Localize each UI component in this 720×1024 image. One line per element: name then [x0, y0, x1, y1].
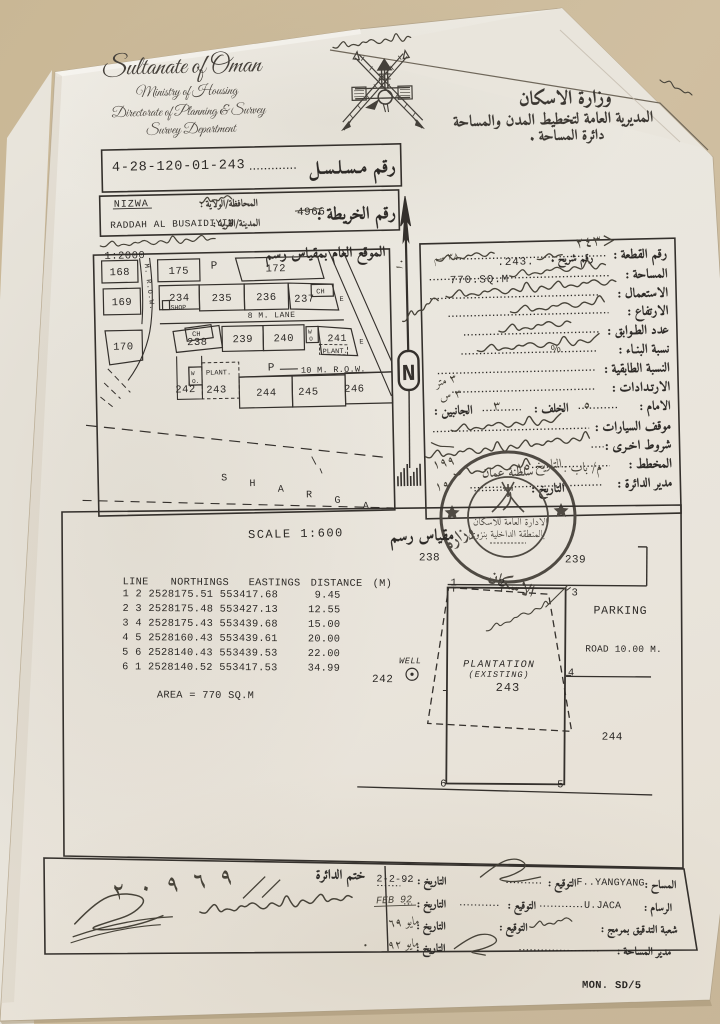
- svg-text:4-28-120-01-243: 4-28-120-01-243: [112, 158, 246, 176]
- svg-text:ROAD 10.00 M.: ROAD 10.00 M.: [585, 643, 662, 655]
- svg-text:.243.: .243.: [497, 256, 534, 269]
- svg-text:EASTINGS: EASTINGS: [249, 577, 301, 589]
- svg-text:240: 240: [273, 333, 294, 345]
- svg-text:5: 5: [557, 779, 563, 791]
- svg-text:2 3 2528175.48 553427.13: 2 3 2528175.48 553427.13: [122, 603, 278, 616]
- svg-text:LINE: LINE: [123, 576, 149, 588]
- svg-text:CH: CH: [316, 288, 325, 296]
- svg-text:(M): (M): [373, 578, 393, 590]
- svg-text:3: 3: [571, 587, 577, 599]
- svg-text:E: E: [339, 296, 343, 304]
- svg-text:244: 244: [602, 732, 623, 744]
- svg-text:E: E: [359, 338, 363, 346]
- svg-text:236: 236: [256, 292, 277, 304]
- svg-text:%: %: [550, 343, 561, 356]
- svg-text:243: 243: [496, 681, 521, 695]
- svg-text:W: W: [308, 329, 312, 336]
- svg-text:PLANT.: PLANT.: [322, 348, 347, 357]
- svg-text:SCALE 1:600: SCALE 1:600: [248, 526, 344, 542]
- svg-text:245: 245: [298, 386, 319, 398]
- svg-text:AREA = 770 SQ.M: AREA = 770 SQ.M: [157, 689, 254, 702]
- svg-text:1 2 2528175.51 553417.68: 1 2 2528175.51 553417.68: [123, 588, 279, 601]
- svg-text:3 4 2528175.43 553439.68: 3 4 2528175.43 553439.68: [122, 617, 278, 630]
- svg-text:235: 235: [212, 293, 233, 305]
- svg-text:N: N: [402, 361, 416, 387]
- svg-text:A: A: [278, 485, 284, 496]
- svg-text:WELL: WELL: [399, 656, 421, 666]
- svg-text:O: O: [309, 336, 313, 343]
- svg-text:2-2-92: 2-2-92: [376, 874, 413, 886]
- svg-text:770.SQ.M: 770.SQ.M: [450, 274, 509, 287]
- svg-text:P: P: [268, 362, 275, 374]
- svg-text:239: 239: [232, 334, 253, 346]
- svg-text:W: W: [191, 370, 195, 377]
- svg-text:2: 2: [498, 578, 504, 590]
- svg-text:U.JACA: U.JACA: [584, 901, 621, 913]
- svg-text:242: 242: [175, 384, 196, 396]
- svg-text:169: 169: [112, 297, 133, 309]
- svg-text:F..YANGYANG: F..YANGYANG: [576, 878, 644, 890]
- svg-text:241: 241: [327, 334, 347, 345]
- svg-text:34.99: 34.99: [308, 663, 340, 675]
- svg-text:6 1 2528140.52 553417.53: 6 1 2528140.52 553417.53: [122, 661, 278, 674]
- svg-text:243: 243: [206, 384, 227, 396]
- svg-text:238: 238: [419, 552, 440, 564]
- svg-text:242: 242: [372, 674, 393, 686]
- svg-text:1: 1: [450, 578, 456, 590]
- svg-text:234: 234: [169, 293, 190, 305]
- svg-text:12.55: 12.55: [308, 604, 340, 616]
- svg-text:15.00: 15.00: [308, 619, 340, 631]
- svg-text:4: 4: [568, 667, 574, 679]
- svg-text:175: 175: [168, 266, 189, 278]
- svg-text:244: 244: [256, 387, 277, 399]
- svg-text:8 M. LANE: 8 M. LANE: [248, 311, 296, 321]
- svg-text:S: S: [221, 473, 227, 484]
- svg-text:9.45: 9.45: [315, 590, 341, 602]
- svg-text:20.00: 20.00: [308, 633, 340, 645]
- svg-text:H: H: [249, 479, 255, 490]
- svg-text:172: 172: [265, 263, 286, 275]
- svg-text:22.00: 22.00: [308, 648, 340, 660]
- svg-text:NORTHINGS: NORTHINGS: [171, 577, 229, 589]
- svg-text:P: P: [211, 261, 218, 273]
- svg-text:G: G: [334, 496, 340, 507]
- svg-text:MON. SD/5: MON. SD/5: [582, 980, 642, 993]
- svg-text:SHOP: SHOP: [171, 304, 187, 311]
- svg-text:4 5 2528160.43 553439.61: 4 5 2528160.43 553439.61: [122, 632, 278, 645]
- svg-text:A: A: [363, 501, 369, 512]
- svg-text:170: 170: [113, 341, 134, 353]
- svg-text:246: 246: [344, 383, 365, 395]
- svg-text:CH: CH: [192, 331, 201, 339]
- svg-text:(EXISTING): (EXISTING): [468, 670, 529, 680]
- svg-text:PLANT.: PLANT.: [206, 369, 231, 378]
- svg-text:168: 168: [110, 267, 131, 279]
- svg-text:DISTANCE: DISTANCE: [311, 578, 363, 590]
- svg-text:6: 6: [440, 778, 446, 790]
- svg-text:239: 239: [565, 554, 586, 566]
- svg-text:PARKING: PARKING: [593, 605, 647, 618]
- svg-text:R: R: [306, 490, 312, 501]
- svg-text:5 6 2528140.43 553439.53: 5 6 2528140.43 553439.53: [122, 647, 278, 660]
